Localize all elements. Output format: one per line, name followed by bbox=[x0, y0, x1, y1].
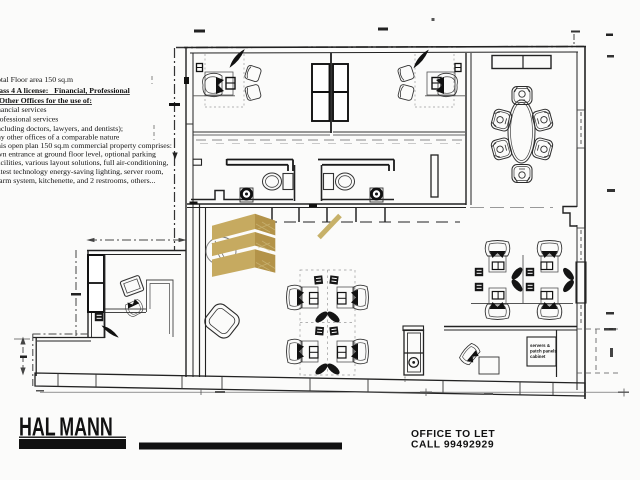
svg-text:OFFICE TO LET: OFFICE TO LET bbox=[411, 429, 495, 440]
svg-text:servers &: servers & bbox=[530, 343, 551, 348]
svg-text:nancial services: nancial services bbox=[0, 105, 47, 114]
svg-text:patch panels: patch panels bbox=[530, 349, 557, 354]
svg-text:atest technology energy-saving: atest technology energy-saving lighting,… bbox=[0, 167, 163, 176]
svg-text:acilities, various layout solu: acilities, various layout solutions, ful… bbox=[0, 158, 168, 167]
svg-text:larm system, kitchenette, and: larm system, kitchenette, and 2 restroom… bbox=[0, 176, 156, 185]
svg-text:rofessional services: rofessional services bbox=[0, 115, 58, 124]
svg-text:Other Offices for the use of:: Other Offices for the use of: bbox=[0, 96, 92, 105]
svg-text:lass 4 A license: Financial,: lass 4 A license: Financial, Professiona… bbox=[0, 86, 131, 95]
svg-text:cabinet: cabinet bbox=[530, 354, 546, 359]
svg-text:otal Floor area 150 sq.m: otal Floor area 150 sq.m bbox=[0, 75, 73, 84]
svg-text:CALL 99492929: CALL 99492929 bbox=[411, 440, 494, 451]
